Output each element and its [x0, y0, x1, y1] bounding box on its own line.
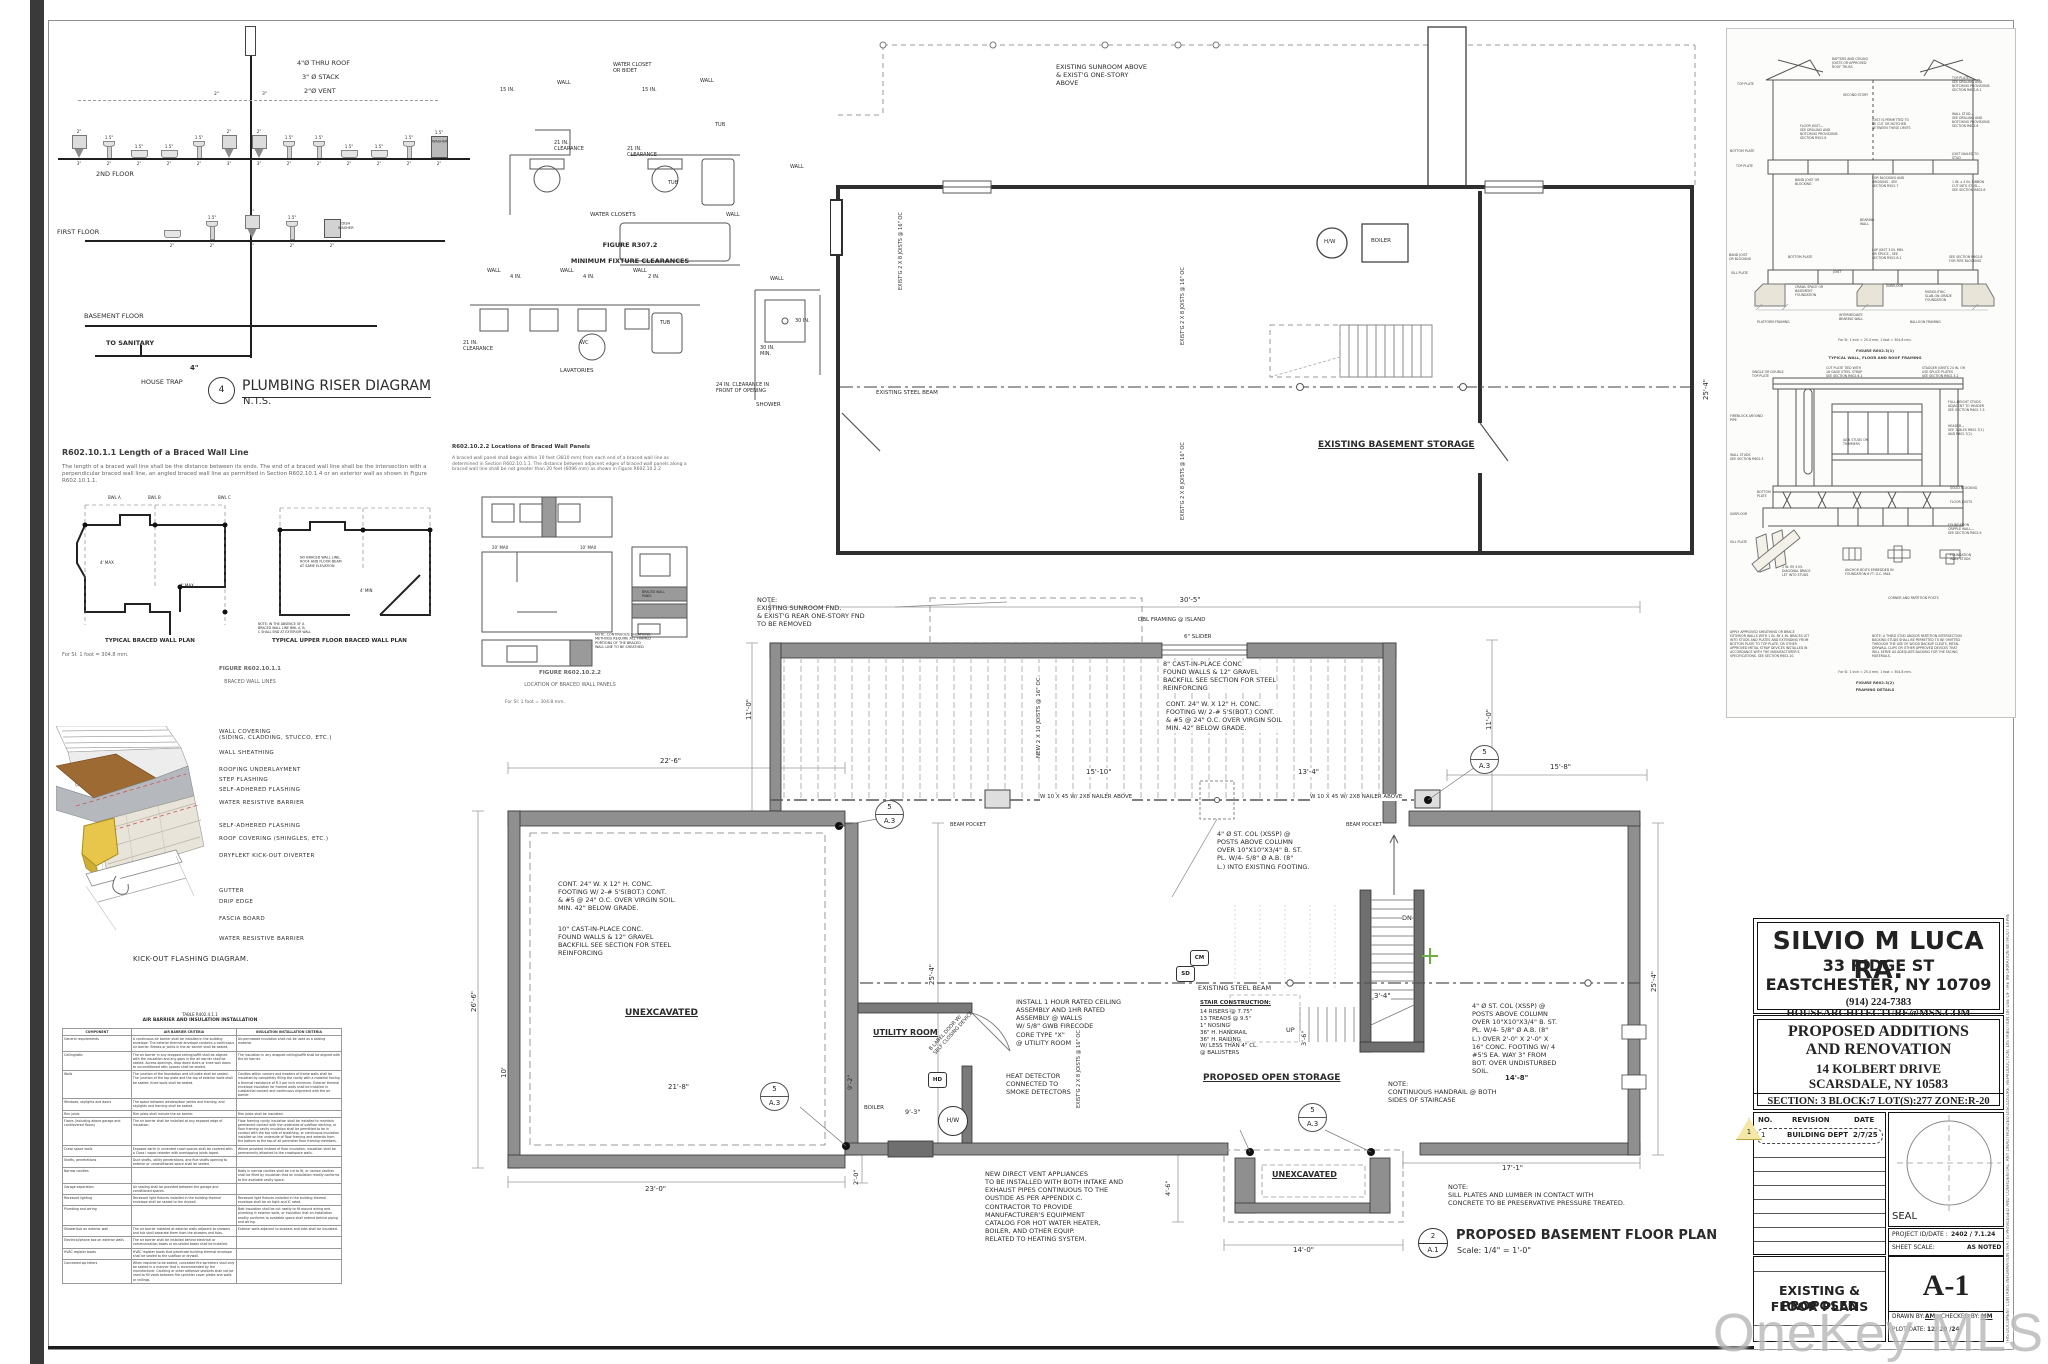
dim-4in: 4 IN.	[583, 274, 595, 280]
air-insulation-cell: Batt insulation shall be cut neatly to f…	[236, 1206, 341, 1226]
air-table-header-row: COMPONENT AIR BARRIER CRITERIA INSULATIO…	[63, 1029, 342, 1036]
bw1-si-note: For SI: 1 foot = 304.8 mm.	[62, 652, 129, 658]
bw1-plan-left	[65, 500, 245, 635]
riser-fixture: 2"	[214, 129, 244, 158]
confidentiality-sidebar: THIS DOCUMENT CONTAINS INFORMATION THAT …	[2006, 914, 2011, 1344]
riser-fixture: 1.5"	[274, 135, 304, 158]
air-insulation-cell: Cavities within corners and headers of f…	[236, 1071, 341, 1099]
dim-22-6: 22'-6"	[660, 757, 681, 766]
divider	[1889, 1241, 2003, 1242]
existing-beam-label: EXISTING STEEL BEAM	[1198, 984, 1271, 992]
max20-label: 20' MAX	[492, 545, 508, 550]
detail-number: 5	[1299, 1104, 1326, 1118]
figure1-number: FIGURE R602.3(1)	[1800, 349, 1950, 354]
detail-number: 5	[761, 1083, 788, 1097]
riser-2nd-floor-sizes: 3"2"2"2"2"3"3"2"2"2"2"2"2"	[64, 161, 454, 166]
air-table-row: Narrow cavities Batts in narrow cavities…	[63, 1168, 342, 1183]
air-barrier-cell: Rim joists shall include the air barrier…	[131, 1110, 236, 1117]
dim-30-5: 30'-5"	[1160, 596, 1220, 605]
framing-label: 1 IN. BY 4 IN. DIAGONAL BRACE LET INTO S…	[1782, 565, 1811, 577]
stack-label: 3" Ø STACK	[302, 73, 339, 81]
air-table-row: General requirements A continuous air ba…	[63, 1036, 342, 1051]
air-insulation-cell: Air-permeable insulation shall not be us…	[236, 1036, 341, 1051]
plan-number: 2	[1419, 1229, 1447, 1244]
framing-label: FLOOR JOISTS	[1950, 500, 1972, 504]
framing-label: BAND JOIST OR BLOCKING	[1795, 178, 1819, 186]
air-barrier-cell: The air barrier installed at exterior wa…	[131, 1225, 236, 1236]
riser-fixture: 2"	[64, 129, 94, 158]
riser-fixture: 1.5"	[192, 215, 232, 238]
min4-label: 4' MIN	[360, 588, 373, 593]
framing-label: BOTTOM PLATE	[1788, 255, 1812, 259]
pipe-size-label: 1.5"	[195, 135, 204, 140]
framing-label: 1 IN. x 4 IN. RIBBON CUT INTO STUD— SEE …	[1952, 180, 1985, 192]
riser-fixture: 1.5"	[272, 215, 312, 238]
air-component-cell: Garage separation	[63, 1183, 132, 1194]
dim-14-8: 14'-8"	[1505, 1074, 1528, 1083]
clearance-21in: 21 IN. CLEARANCE	[627, 146, 657, 159]
fixture-glyph	[164, 230, 181, 238]
beam-size-label: W 10 X 45 W/ 2X8 NAILER ABOVE	[1040, 794, 1132, 801]
column-note-a: 4" Ø ST. COL (XSSP) @ POSTS ABOVE COLUMN…	[1217, 830, 1310, 871]
air-insulation-cell	[236, 1099, 341, 1110]
date-header: DATE	[1854, 1116, 1874, 1124]
dim-17-1: 17'-1"	[1502, 1164, 1523, 1173]
air-table-row: Electrical/phone box on exterior walls T…	[63, 1237, 342, 1248]
pipe-size-label: 2"	[274, 161, 304, 166]
fixture-glyph	[206, 221, 218, 238]
air-insulation-cell	[236, 1248, 341, 1259]
air-barrier-cell	[131, 1168, 236, 1183]
lavatories-caption: LAVATORIES	[560, 368, 593, 375]
framing-label: FOUNDATION CRIPPLE WALL— SEE SECTION R60…	[1948, 523, 1981, 535]
detail-sheet: A.3	[1299, 1118, 1326, 1130]
dim-30in: 30 IN.	[795, 318, 810, 324]
bw1-figure-number: FIGURE R602.10.1.1	[180, 666, 320, 673]
figure2-title: FRAMING DETAILS	[1800, 688, 1950, 693]
pipe-size-label: 1.5"	[375, 144, 384, 149]
framing-label: TOP PLATE	[1736, 164, 1753, 168]
bw1-plan-right	[255, 500, 445, 635]
kickout-label: WALL SHEATHING	[219, 750, 274, 756]
wall-label: WALL	[770, 276, 784, 282]
pipe-size-label: 1.5"	[435, 130, 444, 135]
kickout-label: ROOF COVERING (SHINGLES, ETC.)	[219, 836, 328, 842]
sheet-number: A-1	[1889, 1269, 2003, 1303]
fixture-glyph	[254, 148, 264, 158]
cm-label: CM	[1195, 955, 1205, 961]
kickout-label: WALL COVERING (SIDING, CLADDING, STUCCO,…	[219, 729, 332, 741]
existing-joists-label: EXIST'G 2 X 8 JOISTS @ 16" OC	[1180, 442, 1186, 520]
dim-2in: 2 IN.	[648, 274, 660, 280]
framing-label: BALLOON FRAMING	[1910, 320, 1941, 324]
framing-label: FOUNDATION WALL STUDS	[1950, 553, 1971, 561]
dim-4in: 4 IN.	[510, 274, 522, 280]
dim-15-8: 15'-8"	[1550, 763, 1571, 772]
framing-label: BAND JOIST OR BLOCKING	[1729, 253, 1751, 261]
framing-label: SUBFLOOR	[1730, 512, 1747, 516]
wall-label: WALL	[790, 164, 804, 170]
existing-beam-label: EXISTING STEEL BEAM	[876, 390, 938, 397]
wall-label: WALL	[560, 268, 574, 274]
sill-plate-note: NOTE: SILL PLATES AND LUMBER IN CONTACT …	[1448, 1183, 1625, 1207]
riser-fixture: 1.5"	[364, 144, 394, 158]
air-component-cell: General requirements	[63, 1036, 132, 1051]
bw1-figure-title: BRACED WALL LINES	[180, 679, 320, 685]
revision-triangle-number: 1	[1747, 1128, 1751, 1136]
air-component-cell: Windows, skylights and doors	[63, 1099, 132, 1110]
proposed-plan-scale: Scale: 1/4" = 1'-0"	[1457, 1246, 1531, 1256]
firm-block: SILVIO M LUCA RA. 33 RIDGE ST EASTCHESTE…	[1753, 918, 2004, 1014]
dn-label: DN	[1402, 914, 1412, 922]
thru-roof-label: 4"Ø THRU ROOF	[297, 59, 350, 67]
air-barrier-cell	[131, 1206, 236, 1226]
dim-3-6: 3'-6"	[1300, 1031, 1308, 1046]
sheet-scale-value: AS NOTED	[1967, 1244, 2001, 1251]
project-block: PROPOSED ADDITIONS AND RENOVATION 14 KOL…	[1753, 1015, 2004, 1110]
air-table-row: Windows, skylights and doors The space b…	[63, 1099, 342, 1110]
unexcavated-label: UNEXCAVATED	[1272, 1170, 1337, 1180]
project-address: 14 KOLBERT DRIVE	[1754, 1061, 2003, 1077]
clearance-21in: 21 IN. CLEARANCE	[554, 140, 584, 153]
pipe-size-label: 2"	[424, 161, 454, 166]
riser-2nd-floor-fixtures: 2" 1.5" 1.5" 1.5" 1.5"	[64, 108, 454, 158]
air-table-row: Crawl space walls Exposed earth in unven…	[63, 1145, 342, 1156]
air-insulation-cell: Where provided instead of floor insulati…	[236, 1145, 341, 1156]
foundation10-note: 10" CAST-IN-PLACE CONC. FOUND WALLS & 12…	[558, 925, 671, 958]
drawing-sheet: 2" 3" 2" 1.5" 1.5" 1.5" 1.5	[0, 0, 2048, 1364]
riser-fixture: 1.5"	[154, 144, 184, 158]
riser-basement-line	[85, 325, 377, 327]
wall-label: WALL	[726, 212, 740, 218]
framing-label: CUT PLATE TIED WITH 16 GAGE STEEL STRAP …	[1826, 366, 1863, 378]
bwl-a-label: BWL A	[108, 495, 121, 500]
slider-note: 6" SLIDER	[1184, 634, 1212, 641]
framing-label: CRAWL SPACE OR BASEMENT FOUNDATION	[1795, 285, 1823, 297]
framing-label: BOTTOM PLATE	[1757, 490, 1771, 498]
framing-label: SUBFLOOR	[1886, 284, 1903, 288]
kickout-label: DRIP EDGE	[219, 899, 253, 905]
detail-bubble: 5 A.3	[760, 1082, 789, 1111]
plan-sheet-ref: A.1	[1419, 1244, 1447, 1256]
dim-9-2: 9'-2"	[846, 1075, 854, 1090]
detail-bubble: 5 A.3	[1470, 745, 1499, 774]
pipe-size-label: 1.5"	[288, 215, 297, 220]
project-sbl: SECTION: 3 BLOCK:7 LOT(S):277 ZONE:R-20	[1754, 1093, 2003, 1107]
air-barrier-table: COMPONENT AIR BARRIER CRITERIA INSULATIO…	[62, 1028, 342, 1284]
air-barrier-cell: Air sealing shall be provided between th…	[131, 1183, 236, 1194]
pipe-size-label: 2"	[154, 161, 184, 166]
max4-label: 4' MAX	[180, 583, 194, 588]
riser-fixture: 2"	[244, 129, 274, 158]
air-table-row: Garage separation Air sealing shall be p…	[63, 1183, 342, 1194]
wc-bidet-label: WATER CLOSET OR BIDET	[613, 62, 651, 75]
riser-fixture: 1.5"	[394, 135, 424, 158]
bw2-body: A braced wall panel shall begin within 1…	[452, 456, 687, 473]
smoke-detector-symbol: SD	[1176, 966, 1195, 982]
riser-fixture: 1.5"	[184, 135, 214, 158]
framing-label: SINGLE OR DOUBLE TOP PLATE	[1752, 370, 1784, 378]
fixture-glyph	[371, 150, 388, 158]
existing-joists-label: EXIST'G 2 X 8 JOISTS @ 16" OC	[1180, 267, 1186, 345]
project-id-value: 2402 / 7.1.24	[1951, 1231, 1995, 1238]
dim-15in: 15 IN.	[642, 87, 657, 93]
watermark: OneKey MLS	[1713, 1302, 2044, 1364]
riser-sanitary-line	[95, 355, 252, 357]
fixture-glyph	[74, 148, 84, 158]
dim-25-4: 25'-4"	[1650, 971, 1659, 992]
pipe-size-label: 2"	[250, 209, 255, 214]
rev-header: REVISION	[1792, 1116, 1830, 1124]
riser-dw-label: DISH WASHER	[338, 222, 354, 231]
framing-label: LAP JOIST 3 IN. MIN. OR SPLICE - SEE SEC…	[1872, 248, 1904, 260]
framing-label: JOIST	[1833, 270, 1841, 274]
pipe-size-label: 1.5"	[315, 135, 324, 140]
air-insulation-cell: Floor framing cavity insulation shall be…	[236, 1117, 341, 1145]
framing-label: PLATFORM FRAMING	[1757, 320, 1790, 324]
rev-row-line	[1754, 1199, 1885, 1200]
removal-note: NOTE: EXISTING SUNROOM FND. & EXIST'G RE…	[757, 596, 865, 629]
framing-label: WALL STUDS SEE SECTION R602.3	[1730, 453, 1763, 461]
kickout-label: SELF-ADHERED FLASHING	[219, 823, 300, 829]
kickout-label: GUTTER	[219, 888, 244, 894]
pipe-size-label: 2"	[227, 129, 232, 134]
riser-fixture	[152, 229, 192, 238]
riser-detail-number: 4	[208, 377, 235, 404]
air-barrier-cell: A continuous air barrier shall be instal…	[131, 1036, 236, 1051]
air-table-title: AIR BARRIER AND INSULATION INSTALLATION	[120, 1018, 280, 1024]
framing-label: FLOOR JOIST— SEE DRILLING AND NOTCHING P…	[1800, 124, 1838, 140]
dim-15in: 15 IN.	[500, 87, 515, 93]
detail-bubble: 5 A.3	[1298, 1103, 1327, 1132]
pipe-size-label: 1.5"	[405, 135, 414, 140]
air-col-insulation: INSULATION INSTALLATION CRITERIA	[236, 1029, 341, 1036]
framing-label: TOP PLATE	[1737, 82, 1754, 86]
dim-2-0: 2'-0"	[852, 1170, 860, 1185]
framing-label: SECOND STORY	[1843, 93, 1868, 97]
floor2-label: 2ND FLOOR	[96, 170, 134, 178]
framing-label: SILL PLATE	[1731, 271, 1748, 275]
main-size-label: 4"	[190, 364, 199, 373]
riser-number: 4	[219, 385, 225, 395]
footing-note-left: CONT. 24" W. X 12" H. CONC. FOOTING W/ 2…	[558, 880, 676, 913]
seal-label: SEAL	[1892, 1211, 1917, 1222]
seal-placeholder	[1889, 1113, 2003, 1226]
dim-9-3: 9'-3"	[905, 1108, 920, 1116]
pipe-size-label: 1.5"	[165, 144, 174, 149]
air-component-cell: Ceiling/attic	[63, 1051, 132, 1071]
hw-tank-label: H/W	[1324, 239, 1335, 246]
pipe-size-label: 1.5"	[135, 144, 144, 149]
seal-block: SEAL	[1888, 1112, 2004, 1227]
dim-26-6: 26'-6"	[470, 991, 479, 1012]
co-detector-symbol: CM	[1190, 950, 1209, 966]
stair-construction-head: STAIR CONSTRUCTION:	[1200, 1000, 1271, 1007]
pipe-size-label: 1.5"	[285, 135, 294, 140]
proposed-plan-title: PROPOSED BASEMENT FLOOR PLAN	[1456, 1228, 1717, 1244]
air-component-cell: Floors (including above garage and canti…	[63, 1117, 132, 1145]
rev-row-line	[1754, 1241, 1885, 1242]
tub-label: TUB	[668, 180, 678, 186]
dim-21-8: 21'-8"	[668, 1083, 689, 1092]
framing-label: SOLID BLOCKING	[1950, 486, 1977, 490]
kickout-label: ROOFING UNDERLAYMENT	[219, 767, 301, 773]
beam-size-label: W 10 X 45 W/ 2X8 NAILER ABOVE	[1310, 794, 1402, 801]
air-barrier-cell: Duct shafts, utility penetrations, and f…	[131, 1156, 236, 1167]
stair-construction-body: 14 RISERS @ 7.75" 13 TREADS @ 9.5" 1" NO…	[1200, 1009, 1258, 1057]
air-barrier-cell: The air barrier shall be installed behin…	[131, 1237, 236, 1248]
air-insulation-cell: Rim joists shall be insulated.	[236, 1110, 341, 1117]
rev-row-line	[1754, 1171, 1885, 1172]
open-storage-label: PROPOSED OPEN STORAGE	[1203, 1073, 1340, 1084]
tub-label: TUB	[660, 320, 670, 326]
figure-r307-caption: FIGURE R307.2 MINIMUM FIXTURE CLEARANCES	[555, 233, 705, 266]
dim-4-6: 4'-6"	[1164, 1181, 1172, 1196]
pipe-size-label: 2"	[312, 243, 352, 248]
figure1-title: TYPICAL WALL, FLOOR AND ROOF FRAMING	[1800, 356, 1950, 361]
riser-fixture: 2"	[232, 209, 272, 238]
bw1-heading: R602.10.1.1 Length of a Braced Wall Line	[62, 448, 249, 458]
dim-13-4: 13'-4"	[1298, 768, 1319, 777]
framing-label: FULL-HEIGHT STUDS ADJACENT TO HEADER SEE…	[1948, 400, 1985, 412]
pipe-size-label: 2"	[152, 243, 192, 248]
riser-fixture: 1.5"	[304, 135, 334, 158]
framing-label: CORNER AND PARTITION POSTS	[1888, 596, 1939, 600]
air-component-cell: Recessed lighting	[63, 1195, 132, 1206]
air-component-cell: Shafts, penetrations	[63, 1156, 132, 1167]
framing-label: WALL STUD— SEE DRILLING AND NOTCHING PRO…	[1952, 112, 1990, 128]
air-barrier-cell: Recessed light fixtures installed in the…	[131, 1195, 236, 1206]
riser-hdr2-label: 2"	[214, 92, 219, 98]
kickout-label: WATER RESISTIVE BARRIER	[219, 800, 304, 806]
tub-label: TUB	[715, 122, 725, 128]
air-component-cell: Crawl space walls	[63, 1145, 132, 1156]
floor1-label: FIRST FLOOR	[57, 228, 99, 236]
air-table-row: Concealed sprinklers When required to be…	[63, 1259, 342, 1283]
no-bwl-note: NO BRACED WALL LINE, ROOF AND FLOOR BEAM…	[300, 555, 342, 568]
revision-cloud: 1 BUILDING DEPT 2/7/25	[1756, 1128, 1883, 1144]
fixture-glyph	[224, 148, 234, 158]
pipe-size-label: 2"	[364, 161, 394, 166]
air-insulation-cell: Recessed light fixtures installed in the…	[236, 1195, 341, 1206]
bw1-caption-left: TYPICAL BRACED WALL PLAN	[105, 638, 195, 645]
rev-1-no: 1	[1761, 1131, 1765, 1139]
fixture-glyph	[193, 141, 205, 158]
wall-label: WALL	[487, 268, 501, 274]
air-insulation-cell: Exterior walls adjacent to showers and t…	[236, 1225, 341, 1236]
pipe-size-label: 2"	[124, 161, 154, 166]
fixture-glyph	[103, 141, 115, 158]
detail-bubble: 5 A.3	[875, 800, 904, 829]
up-label: UP	[1286, 1026, 1295, 1034]
column-note-b: 4" Ø ST. COL (XSSP) @ POSTS ABOVE COLUMN…	[1472, 1002, 1557, 1075]
pipe-size-label: 1.5"	[345, 144, 354, 149]
fixture-glyph	[286, 221, 298, 238]
foundation8-note: 8" CAST-IN-PLACE CONC FOUND WALLS & 12" …	[1163, 660, 1276, 693]
framing-label: JOIST IS PERMITTED TO BE CUT OR NOTCHED …	[1872, 118, 1911, 130]
wc-label: WC	[580, 340, 588, 346]
beam-pocket-label: BEAM POCKET	[1346, 822, 1382, 828]
pipe-size-label: 2"	[192, 243, 232, 248]
shower-caption: SHOWER	[756, 402, 781, 409]
fixture-glyph	[341, 150, 358, 158]
rev-row-line	[1754, 1185, 1885, 1186]
rev-row-line	[1754, 1271, 1885, 1272]
dim-14-0: 14'-0"	[1293, 1246, 1314, 1255]
firm-city: EASTCHESTER, NY 10709	[1754, 975, 2003, 994]
heat-detector-note: HEAT DETECTOR CONNECTED TO SMOKE DETECTO…	[1006, 1072, 1071, 1096]
kickout-label: SELF-ADHERED FLASHING	[219, 787, 300, 793]
framing-label: BEARING WALL	[1860, 218, 1874, 226]
pipe-size-label: 1.5"	[208, 215, 217, 220]
riser-scale: N.T.S.	[243, 396, 271, 409]
framing-label: FOR BLOCKING AND BRIDGING - SEE SECTION …	[1872, 176, 1904, 188]
pipe-size-label: 2"	[394, 161, 424, 166]
framing-label: SEE SECTION R602.8 FOR FIRE BLOCKING	[1949, 255, 1982, 263]
to-sanitary-label: TO SANITARY	[106, 339, 154, 347]
detail-number: 5	[1471, 746, 1498, 760]
riser-washer-label: WASHER	[432, 140, 447, 144]
air-col-component: COMPONENT	[63, 1029, 132, 1036]
project-id-label: PROJECT ID/DATE :	[1892, 1231, 1948, 1238]
pipe-size-label: 1.5"	[105, 135, 114, 140]
hd-label: HD	[933, 1077, 942, 1083]
air-insulation-cell	[236, 1156, 341, 1167]
air-barrier-cell: When required to be sealed, concealed fi…	[131, 1259, 236, 1283]
air-table-row: Rim joists Rim joists shall include the …	[63, 1110, 342, 1117]
house-trap-label: HOUSE TRAP	[141, 378, 183, 386]
fire-rating-note: INSTALL 1 HOUR RATED CEILING ASSEMBLY AN…	[1016, 998, 1121, 1047]
framing-label: FIREBLOCK AROUND PIPE	[1730, 414, 1763, 422]
water-closets-caption: WATER CLOSETS	[590, 212, 636, 219]
existing-plan-linework	[830, 25, 1720, 570]
fixture-glyph	[313, 141, 325, 158]
project-city: SCARSDALE, NY 10583	[1754, 1076, 2003, 1092]
kickout-illustration	[56, 726, 211, 941]
framing-label: TOP PLATE— SEE DRILLING AND NOTCHING PRO…	[1952, 76, 1990, 92]
fixture-glyph	[161, 150, 178, 158]
plan-title-bubble: 2 A.1	[1418, 1228, 1448, 1258]
riser-roof-vent	[245, 26, 256, 56]
framing-label: MONOLITHIC SLAB-ON-GRADE FOUNDATION	[1925, 290, 1952, 302]
max4-label: 4' MAX	[100, 560, 114, 565]
air-component-cell: Narrow cavities	[63, 1168, 132, 1183]
pipe-size-label: 3"	[244, 161, 274, 166]
riser-1st-floor-line	[85, 240, 445, 242]
dim-11-0: 11'-0"	[745, 699, 754, 720]
existing-joists-label: EXIST'G 2 X 8 JOISTS @ 16" OC	[898, 212, 904, 290]
bw1-body: The length of a braced wall line shall b…	[62, 464, 442, 485]
rev-row-line	[1754, 1157, 1885, 1158]
max10-label: 10' MAX	[580, 545, 596, 550]
project-title-2: AND RENOVATION	[1754, 1041, 2003, 1059]
survey-marker	[1422, 948, 1438, 964]
riser-fixture: 1.5"	[94, 135, 124, 158]
kickout-label: STEP FLASHING	[219, 777, 268, 783]
pipe-size-label: 2"	[94, 161, 124, 166]
fixture-glyph	[131, 150, 148, 158]
figure1-si-note: For SI: 1 inch = 25.4 mm, 1 foot = 304.8…	[1800, 338, 1950, 342]
detail-sheet: A.3	[761, 1097, 788, 1109]
rev-1-date: 2/7/25	[1853, 1131, 1878, 1139]
pipe-size-label: 2"	[334, 161, 364, 166]
air-insulation-cell	[236, 1183, 341, 1194]
framing-note-right: NOTE: A THIRD STUD AND/OR PARTITION INTE…	[1872, 634, 1962, 658]
existing-joists-label: EXIST'G 2 X 8 JOISTS @ 16" OC	[1076, 1030, 1082, 1108]
hw-label: H/W	[947, 1117, 959, 1124]
rev-no-header: NO.	[1758, 1116, 1772, 1124]
air-component-cell: HVAC register boots	[63, 1248, 132, 1259]
